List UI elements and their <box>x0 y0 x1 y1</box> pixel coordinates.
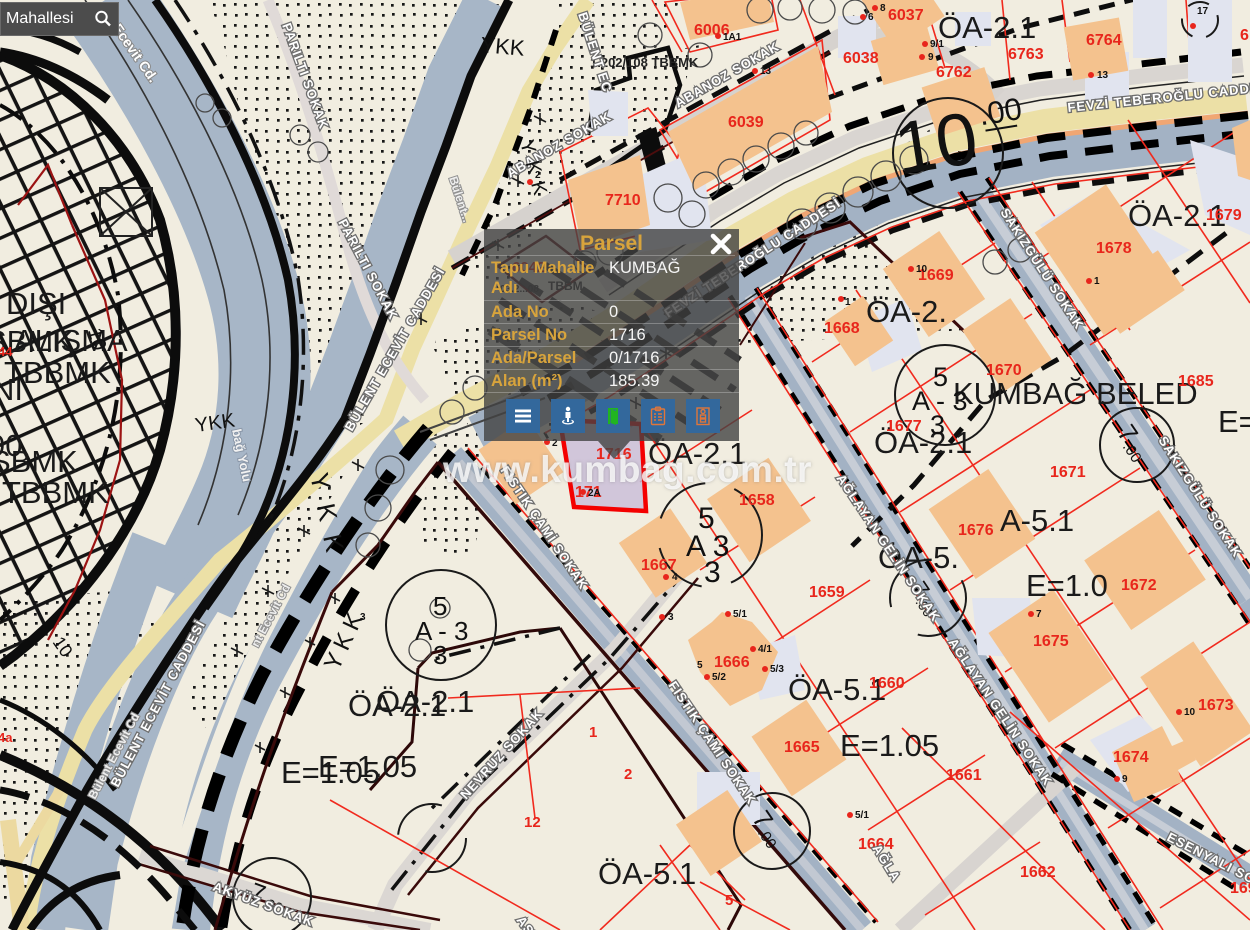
svg-text:E=1: E=1 <box>1218 404 1250 439</box>
svg-text:3: 3 <box>433 640 447 670</box>
svg-text:E=1.05: E=1.05 <box>840 728 939 763</box>
svg-text:1679: 1679 <box>1206 207 1242 224</box>
svg-text:6: 6 <box>1240 27 1249 44</box>
svg-text:10: 10 <box>916 264 928 275</box>
svg-text:1671: 1671 <box>1050 464 1086 481</box>
svg-text:5/1: 5/1 <box>733 609 747 620</box>
svg-text:5: 5 <box>725 892 733 909</box>
svg-text:1: 1 <box>589 724 597 741</box>
svg-text:YKK: YKK <box>480 32 526 61</box>
svg-text:NI: NI <box>0 372 23 407</box>
svg-text:13: 13 <box>760 66 772 77</box>
svg-text:1665: 1665 <box>784 739 820 756</box>
svg-text:ÖA-5.1: ÖA-5.1 <box>598 856 696 891</box>
svg-text:8: 8 <box>880 3 886 14</box>
svg-text:1678: 1678 <box>1096 240 1132 257</box>
svg-text:E=1.05: E=1.05 <box>318 749 417 784</box>
svg-text:9/1: 9/1 <box>930 39 944 50</box>
svg-text:5/3: 5/3 <box>770 664 784 675</box>
svg-text:1677: 1677 <box>886 418 922 435</box>
svg-text:1658: 1658 <box>739 492 775 509</box>
svg-text:1668: 1668 <box>824 320 860 337</box>
svg-text:6038: 6038 <box>843 50 879 67</box>
svg-text:SBMK: SBMK <box>0 444 78 479</box>
svg-text:1666: 1666 <box>714 654 750 671</box>
svg-text:6763: 6763 <box>1008 46 1044 63</box>
svg-text:6: 6 <box>868 12 874 23</box>
svg-text:E=1.0: E=1.0 <box>1026 568 1108 603</box>
svg-text:6039: 6039 <box>728 114 764 131</box>
svg-text:7: 7 <box>1036 609 1042 620</box>
svg-text:3: 3 <box>930 410 945 440</box>
svg-text:1674: 1674 <box>1113 749 1149 766</box>
svg-text:1659: 1659 <box>809 584 845 601</box>
svg-text:1676: 1676 <box>958 522 994 539</box>
svg-text:10: 10 <box>1184 707 1196 718</box>
svg-text:1662: 1662 <box>1020 864 1056 881</box>
svg-text:3: 3 <box>668 612 674 623</box>
svg-text:1672: 1672 <box>1121 577 1157 594</box>
svg-text:1: 1 <box>845 297 851 308</box>
svg-text:17: 17 <box>1197 6 1209 17</box>
svg-text:ALIŞMA: ALIŞMA <box>14 323 128 358</box>
svg-text:1: 1 <box>1094 276 1100 287</box>
svg-text:KUMBAĞ BELED: KUMBAĞ BELED <box>953 376 1198 411</box>
svg-text:7710: 7710 <box>605 192 641 209</box>
svg-text:13: 13 <box>1097 70 1109 81</box>
svg-text:1685: 1685 <box>1178 373 1214 390</box>
svg-text:1660: 1660 <box>869 675 905 692</box>
svg-text:ÖA-2.: ÖA-2. <box>866 294 947 329</box>
svg-text:1A1: 1A1 <box>723 32 742 43</box>
svg-text:10: 10 <box>889 96 983 191</box>
svg-text:6762: 6762 <box>936 64 972 81</box>
svg-text:9: 9 <box>1122 774 1128 785</box>
svg-text:5/2: 5/2 <box>712 672 726 683</box>
svg-text:4: 4 <box>672 572 678 583</box>
svg-text:1661: 1661 <box>946 767 982 784</box>
svg-text:9: 9 <box>928 52 934 63</box>
svg-text:ÖA-2.1: ÖA-2.1 <box>376 684 474 719</box>
svg-text:DIŞI: DIŞI <box>6 286 66 321</box>
svg-text:5: 5 <box>697 660 703 671</box>
svg-text:3: 3 <box>704 556 721 589</box>
svg-text:ÖA-2.1: ÖA-2.1 <box>938 10 1036 45</box>
svg-text:1670: 1670 <box>986 362 1022 379</box>
svg-text:A-5.1: A-5.1 <box>1000 503 1074 538</box>
svg-text:TBBMK: TBBMK <box>2 475 109 510</box>
svg-text:12: 12 <box>524 814 541 831</box>
svg-text:6037: 6037 <box>888 7 924 24</box>
svg-text:44: 44 <box>0 344 13 359</box>
svg-text:4/1: 4/1 <box>758 644 772 655</box>
svg-text:4a: 4a <box>0 730 13 745</box>
svg-text:5/1: 5/1 <box>855 810 869 821</box>
svg-text:1675: 1675 <box>1033 633 1069 650</box>
svg-text:6764: 6764 <box>1086 32 1122 49</box>
svg-text:1673: 1673 <box>1198 697 1234 714</box>
svg-text:2: 2 <box>624 766 632 783</box>
